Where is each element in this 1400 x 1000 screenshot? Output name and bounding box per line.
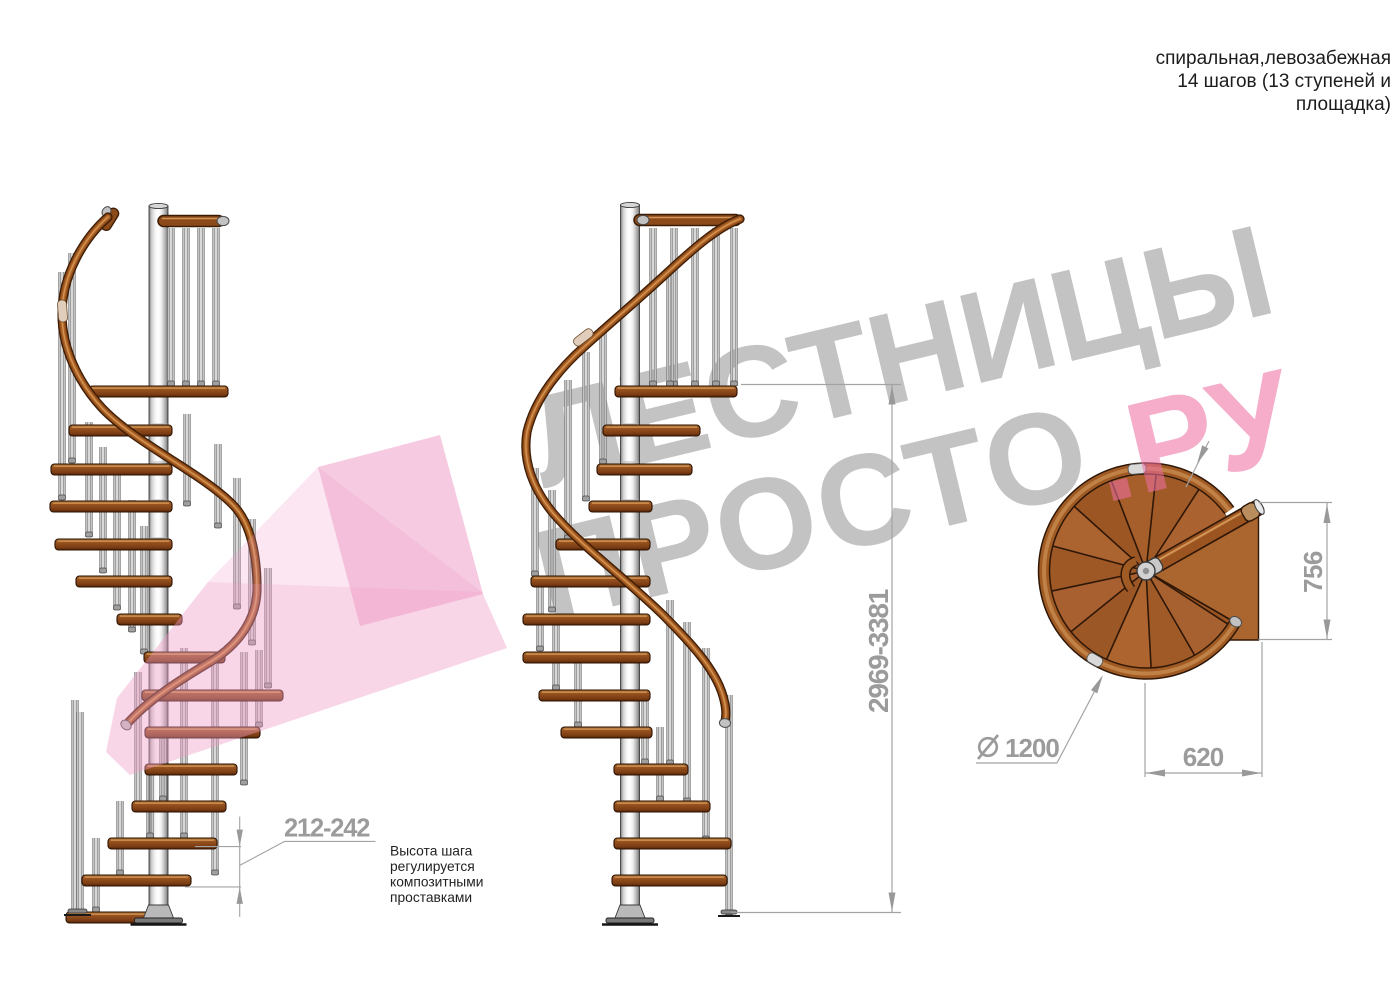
- svg-text:14 шагов (13 ступеней и: 14 шагов (13 ступеней и: [1177, 71, 1391, 92]
- svg-text:212-242: 212-242: [284, 815, 370, 843]
- svg-text:проставками: проставками: [390, 890, 472, 905]
- svg-text:композитными: композитными: [390, 875, 483, 890]
- svg-text:Высота шага: Высота шага: [390, 844, 473, 859]
- svg-text:2969-3381: 2969-3381: [863, 589, 894, 713]
- svg-text:регулируется: регулируется: [390, 859, 475, 874]
- svg-text:площадка): площадка): [1296, 94, 1391, 115]
- svg-text:спиральная,левозабежная: спиральная,левозабежная: [1156, 48, 1391, 69]
- svg-text:1200: 1200: [1005, 733, 1059, 763]
- svg-text:756: 756: [1298, 551, 1328, 593]
- svg-text:620: 620: [1183, 742, 1224, 772]
